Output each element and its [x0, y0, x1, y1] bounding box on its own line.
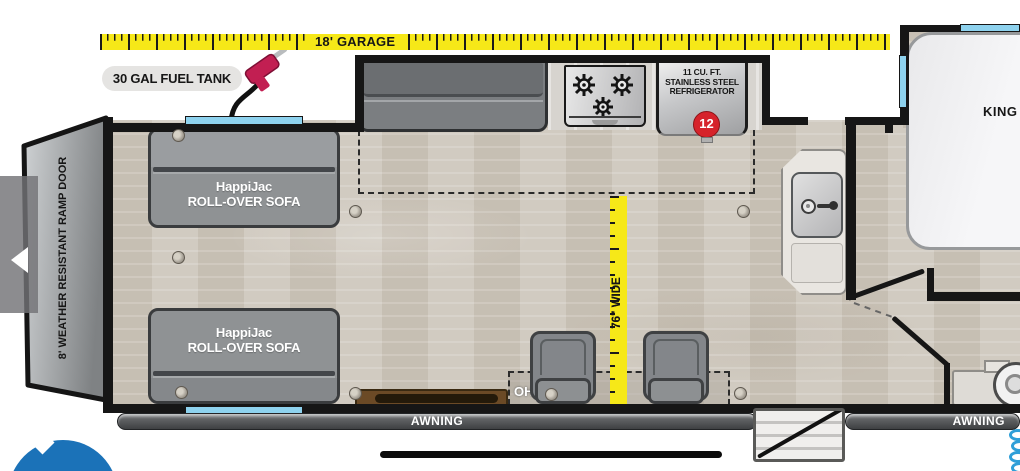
blue-coil-icon: [1011, 462, 1020, 471]
fuel-tank-label: 30 GAL FUEL TANK: [102, 66, 242, 91]
speaker-icon: [737, 205, 750, 218]
speaker-icon: [349, 387, 362, 400]
ramp-door-label: 8' WEATHER RESISTANT RAMP DOOR: [57, 118, 71, 398]
chair-back: [540, 339, 586, 375]
entry-steps: [753, 408, 845, 462]
faucet-center: [806, 204, 810, 208]
toilet-bowl: [1005, 374, 1020, 394]
window: [185, 116, 303, 125]
prev-arrow-button[interactable]: [0, 176, 38, 313]
speaker-icon: [545, 388, 558, 401]
sofa-seam-highlight: [153, 172, 335, 174]
awning-bar-right: AWNING: [845, 413, 1020, 430]
sofa-label-line1: HappiJac: [151, 325, 337, 340]
vanity-lower-shelf: [791, 243, 843, 283]
garage-cabinet: [358, 58, 548, 132]
wall: [355, 55, 364, 132]
wall: [103, 117, 113, 409]
sofa-label-line2: ROLL-OVER SOFA: [151, 340, 337, 355]
cabinet-top-section: [363, 63, 543, 97]
garage-bed-dashed-zone: [358, 130, 755, 194]
theater-chair-left: [530, 331, 596, 401]
stove-vent: [592, 120, 618, 125]
floorplan-canvas: 8' WEATHER RESISTANT RAMP DOOR OHC 76" W…: [0, 0, 1020, 471]
chair-cushion: [648, 378, 704, 404]
garage-ruler-label: 18' GARAGE: [305, 34, 405, 50]
speaker-icon: [172, 129, 185, 142]
fridge-label-line3: REFRIGERATOR: [659, 87, 745, 97]
speaker-icon: [349, 205, 362, 218]
scrubber-line: [380, 451, 722, 458]
wall: [355, 55, 770, 63]
steps-diagonal: [757, 408, 843, 459]
wall: [762, 55, 770, 125]
wall: [846, 125, 856, 300]
feature-badge: 12: [693, 111, 720, 138]
faucet-icon: [801, 199, 816, 214]
width-ruler-text-layer: 76" WIDE: [611, 203, 625, 403]
sofa-label-line2: ROLL-OVER SOFA: [151, 194, 337, 209]
window: [960, 24, 1020, 32]
sofa-label-line1: HappiJac: [151, 179, 337, 194]
wall: [927, 292, 1020, 301]
entry-door-jamb: [944, 363, 950, 406]
bed-label: KING: [983, 104, 1018, 119]
chevron-left-icon: [11, 247, 28, 273]
cabinet-gap-line: [363, 100, 543, 102]
awning-right-label: AWNING: [953, 414, 1005, 428]
speaker-icon: [172, 251, 185, 264]
stove: [564, 65, 646, 127]
awning-bar-left: AWNING: [117, 413, 757, 430]
rollover-sofa-front: HappiJac ROLL-OVER SOFA: [148, 128, 340, 228]
wall: [927, 268, 934, 294]
badge-tab: [701, 137, 713, 143]
speaker-icon: [175, 386, 188, 399]
window: [899, 55, 907, 108]
theater-chair-right: [643, 331, 709, 401]
garage-ruler: 18' GARAGE: [100, 34, 890, 50]
king-bed: [906, 32, 1020, 250]
chair-cushion: [535, 378, 591, 404]
awning-left-label: AWNING: [411, 414, 463, 428]
console-inset: [375, 394, 498, 403]
speaker-icon: [734, 387, 747, 400]
wall: [762, 117, 808, 125]
chair-back: [653, 339, 699, 375]
stove-control-line: [569, 116, 641, 118]
faucet-knob: [829, 201, 838, 210]
wall: [885, 125, 893, 133]
